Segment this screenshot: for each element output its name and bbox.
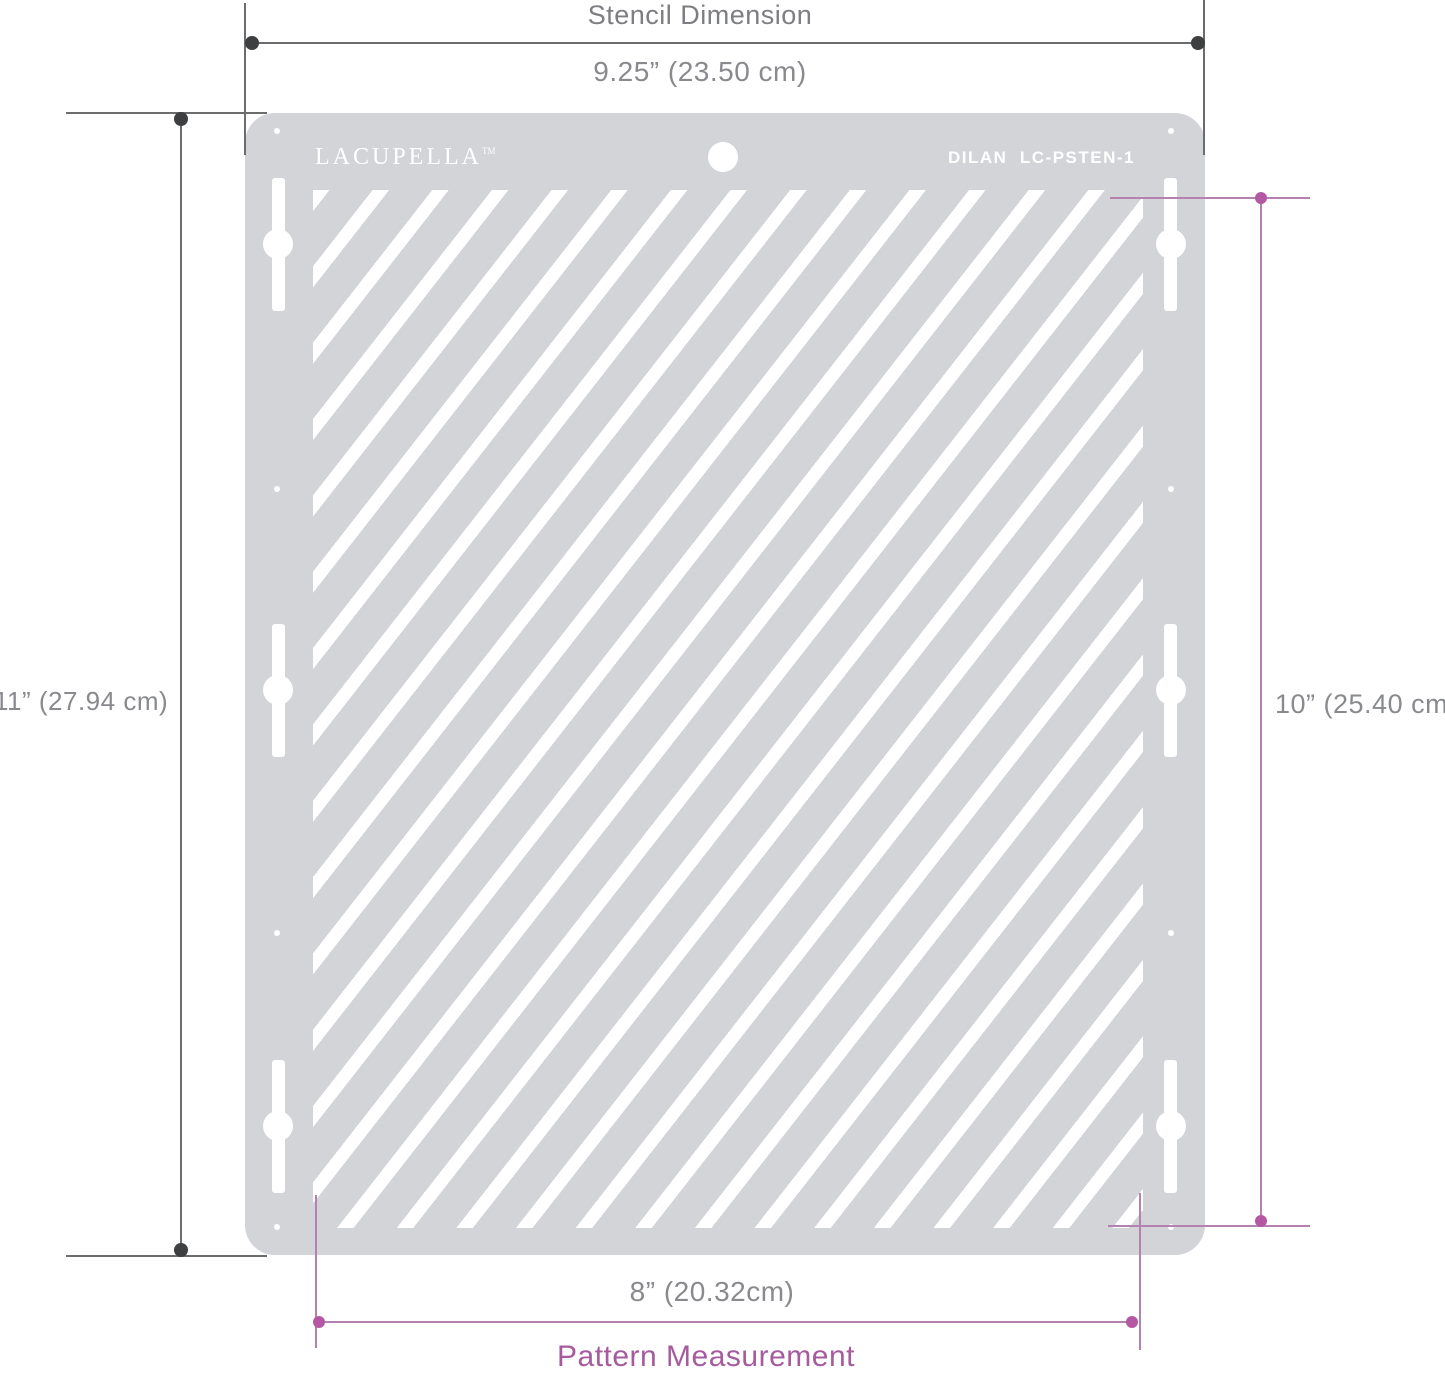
dimension-line-bottom: [318, 1321, 1133, 1323]
registration-circle-left-bottom: [263, 1111, 293, 1141]
alignment-hole: [274, 486, 280, 492]
brand-logo: LACUPELLATM: [315, 144, 496, 171]
registration-circle-right-top: [1156, 229, 1186, 259]
brand-logo-text: LACUPELLA: [315, 144, 482, 170]
alignment-hole: [274, 930, 280, 936]
diagonal-stripe-pattern: [313, 190, 1143, 1228]
dimension-endpoint-dot-pink: [313, 1316, 325, 1328]
alignment-hole: [1168, 486, 1174, 492]
dimension-endpoint-dot-pink: [1255, 1215, 1267, 1227]
registration-circle-right-bottom: [1156, 1111, 1186, 1141]
pattern-width-value: 8” (20.32cm): [412, 1276, 1012, 1308]
registration-circle-left-middle: [263, 675, 293, 705]
alignment-hole: [1168, 128, 1174, 134]
dimension-line-top: [251, 42, 1199, 44]
dimension-line-right: [1260, 198, 1262, 1221]
registration-circle-right-middle: [1156, 675, 1186, 705]
trademark-symbol: TM: [482, 146, 496, 156]
model-number: DILAN LC-PSTEN-1: [948, 148, 1135, 168]
pattern-height-value: 10” (25.40 cm): [1275, 689, 1445, 720]
extension-line-bottom-right: [1139, 1193, 1141, 1350]
hanging-hole: [708, 142, 738, 172]
dimension-endpoint-dot: [174, 112, 188, 126]
dimension-endpoint-dot-pink: [1255, 192, 1267, 204]
alignment-hole: [1168, 930, 1174, 936]
extension-line-top-left: [244, 3, 246, 155]
stencil-width-value: 9.25” (23.50 cm): [400, 56, 1000, 88]
stencil-dimension-title: Stencil Dimension: [400, 0, 1000, 31]
dimension-endpoint-dot-pink: [1126, 1316, 1138, 1328]
dimension-endpoint-dot: [174, 1243, 188, 1257]
stencil-body: LACUPELLATM DILAN LC-PSTEN-1: [245, 113, 1205, 1255]
extension-line-top-right: [1203, 0, 1205, 155]
dimension-endpoint-dot: [245, 36, 259, 50]
product-dimension-diagram: LACUPELLATM DILAN LC-PSTEN-1 Stencil Dim…: [0, 0, 1445, 1374]
dimension-line-left: [180, 118, 182, 1250]
dimension-endpoint-dot: [1191, 36, 1205, 50]
registration-circle-left-top: [263, 229, 293, 259]
extension-line-left-top: [66, 112, 267, 114]
extension-line-left-bottom: [66, 1255, 267, 1257]
pattern-measurement-label: Pattern Measurement: [406, 1340, 1006, 1374]
stencil-height-value: 11” (27.94 cm): [0, 686, 168, 717]
alignment-hole: [274, 128, 280, 134]
extension-line-right-top: [1110, 197, 1310, 199]
alignment-hole: [274, 1224, 280, 1230]
